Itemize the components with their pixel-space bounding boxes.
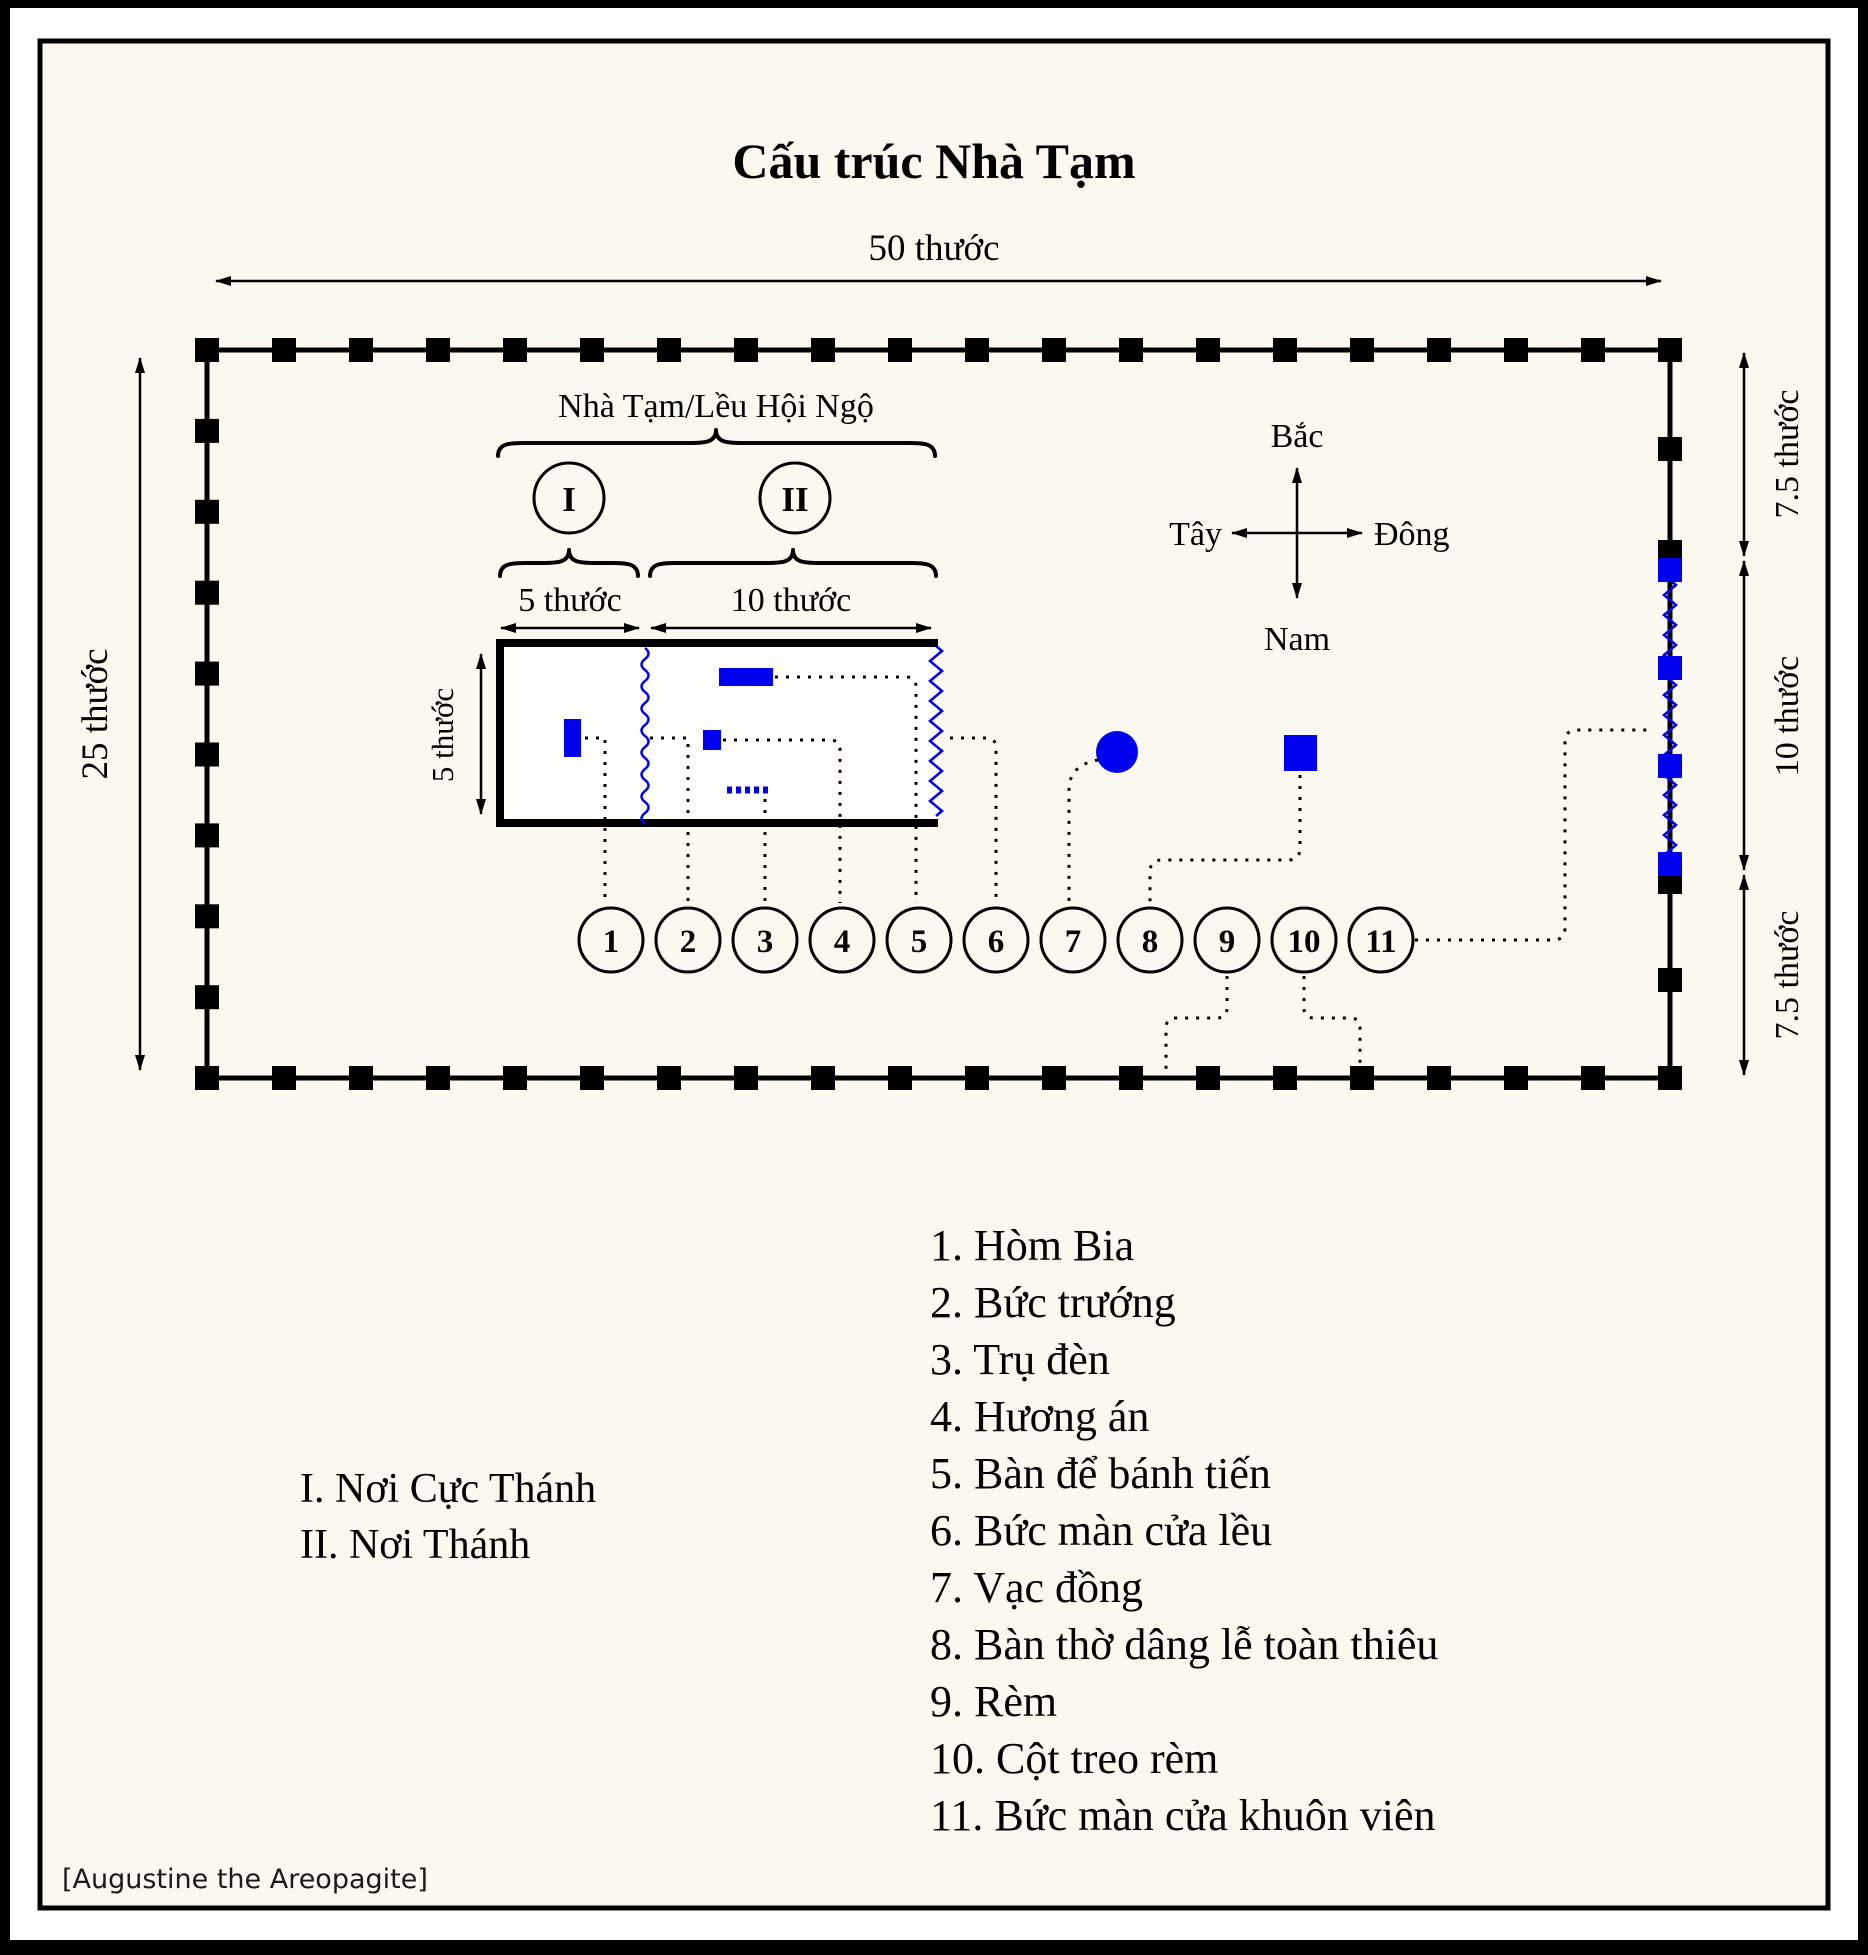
tabernacle-diagram: Cấu trúc Nhà Tạm 50 thước 25 thước 7.5 t… xyxy=(0,0,1868,1950)
legend-item-10: 10. Cột treo rèm xyxy=(930,1734,1218,1783)
svg-text:I: I xyxy=(562,480,576,519)
svg-text:3: 3 xyxy=(757,924,774,960)
courtyard-height-label: 25 thước xyxy=(75,648,116,779)
svg-text:7: 7 xyxy=(1065,924,1082,960)
zone1-width-label: 5 thước xyxy=(518,582,621,619)
legend-item-3: 3. Trụ đèn xyxy=(930,1335,1110,1384)
compass-west: Tây xyxy=(1169,516,1222,553)
callout-1: 1 xyxy=(579,908,643,972)
courtyard-width-label: 50 thước xyxy=(868,228,999,269)
callout-9: 9 xyxy=(1195,908,1259,972)
tent-depth-label: 5 thước xyxy=(425,688,460,782)
burnt-offering-altar xyxy=(1284,735,1317,771)
callout-10: 10 xyxy=(1272,908,1336,972)
attribution: [Augustine the Areopagite] xyxy=(62,1864,428,1895)
compass-north: Bắc xyxy=(1271,418,1324,455)
callout-circles: 1 2 3 4 5 6 7 8 9 10 11 xyxy=(579,908,1413,972)
svg-text:4: 4 xyxy=(834,924,851,960)
callout-6: 6 xyxy=(964,908,1028,972)
svg-text:11: 11 xyxy=(1365,924,1396,960)
ark-of-covenant xyxy=(564,719,581,757)
svg-text:2: 2 xyxy=(680,924,697,960)
legend-item-6: 6. Bức màn cửa lều xyxy=(930,1506,1272,1555)
svg-text:9: 9 xyxy=(1219,924,1236,960)
svg-text:1: 1 xyxy=(603,924,620,960)
east-bottom-label: 7.5 thước xyxy=(1769,911,1806,1040)
legend-item-5: 5. Bàn để bánh tiến xyxy=(930,1449,1271,1498)
callout-8: 8 xyxy=(1118,908,1182,972)
compass-east: Đông xyxy=(1374,516,1450,553)
incense-altar xyxy=(703,730,721,750)
zone2-circle: II xyxy=(760,463,830,533)
legend-item-8: 8. Bàn thờ dâng lễ toàn thiêu xyxy=(930,1620,1438,1669)
callout-2: 2 xyxy=(656,908,720,972)
zone1-circle: I xyxy=(534,463,604,533)
callout-4: 4 xyxy=(810,908,874,972)
zone-key-1: I. Nơi Cực Thánh xyxy=(300,1466,596,1512)
svg-text:6: 6 xyxy=(988,924,1005,960)
callout-11: 11 xyxy=(1349,908,1413,972)
callout-7: 7 xyxy=(1041,908,1105,972)
svg-text:II: II xyxy=(781,480,808,519)
callout-5: 5 xyxy=(887,908,951,972)
legend-item-4: 4. Hương án xyxy=(930,1392,1149,1441)
zone-key-2: II. Nơi Thánh xyxy=(300,1522,530,1568)
legend-item-2: 2. Bức trướng xyxy=(930,1278,1176,1327)
legend-item-1: 1. Hòm Bia xyxy=(930,1221,1134,1270)
legend-item-9: 9. Rèm xyxy=(930,1677,1057,1726)
zone2-width-label: 10 thước xyxy=(731,582,851,619)
legend-item-11: 11. Bức màn cửa khuôn viên xyxy=(930,1791,1436,1840)
legend-item-7: 7. Vạc đồng xyxy=(930,1563,1143,1612)
east-top-label: 7.5 thước xyxy=(1769,390,1806,519)
tent-label: Nhà Tạm/Lều Hội Ngộ xyxy=(558,388,874,425)
svg-text:8: 8 xyxy=(1142,924,1159,960)
east-gate-label: 10 thước xyxy=(1769,656,1806,776)
svg-text:5: 5 xyxy=(911,924,928,960)
callout-3: 3 xyxy=(733,908,797,972)
showbread-table xyxy=(719,668,773,686)
compass-south: Nam xyxy=(1264,621,1330,658)
svg-text:10: 10 xyxy=(1288,924,1321,960)
bronze-basin xyxy=(1096,731,1138,773)
page-title: Cấu trúc Nhà Tạm xyxy=(732,133,1135,189)
